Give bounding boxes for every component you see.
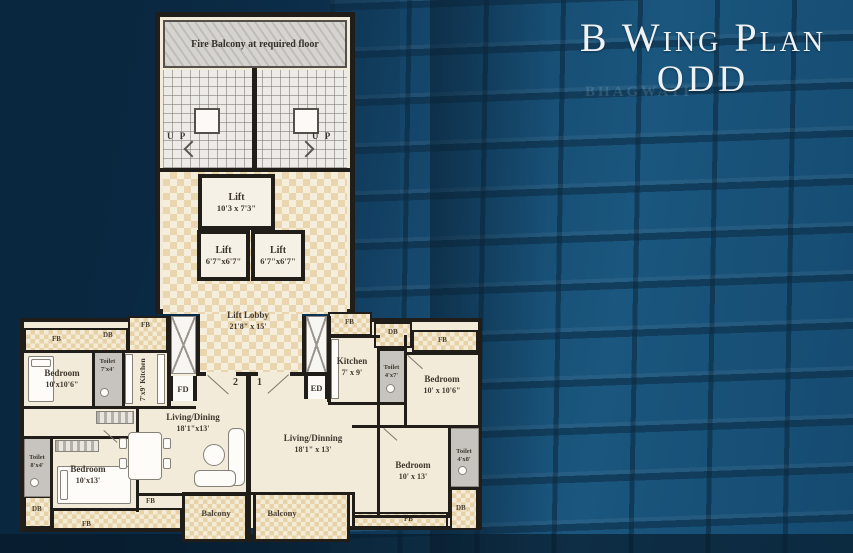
flat2-kitchen-label: 7'x9' Kitchen xyxy=(138,356,147,404)
flat1-kitchen-label: Kitchen 7' x 9' xyxy=(328,356,376,378)
flat1-toilet2-label: Toilet 4'x8' xyxy=(450,448,478,465)
wall xyxy=(377,402,380,518)
wall xyxy=(24,406,196,409)
plan-title-line1: B Wing Plan xyxy=(560,16,846,60)
chair-icon xyxy=(163,458,171,469)
flat2-toilet2-label: Toilet 8'x4' xyxy=(24,454,50,471)
wall xyxy=(328,402,406,405)
wall xyxy=(404,352,479,355)
fd-label: FD xyxy=(177,384,188,394)
wall xyxy=(352,492,355,528)
wc-icon xyxy=(458,466,467,475)
wall xyxy=(352,425,479,428)
plan-title: B Wing Plan ODD xyxy=(560,16,846,101)
wall xyxy=(290,372,332,376)
wc-icon xyxy=(30,478,39,487)
db-marker: DB xyxy=(32,505,42,513)
room-size: 7' x 9' xyxy=(328,368,376,378)
wall xyxy=(246,372,251,542)
room-size: 8'x4' xyxy=(24,462,50,470)
flat1-bedroom1-label: Bedroom 10' x 10'6" xyxy=(410,374,474,396)
wall xyxy=(302,316,306,376)
room-name: Toilet xyxy=(379,364,404,372)
flat1-balcony-label: Balcony xyxy=(258,508,306,518)
lift-small-right: Lift 6'7"x6'7" xyxy=(251,230,305,281)
wall xyxy=(328,335,380,338)
room-size: 18'1" x 13' xyxy=(268,445,358,455)
flat2-bedroom2-label: Bedroom 10'x13' xyxy=(62,464,114,486)
fire-balcony-label: Fire Balcony at required floor xyxy=(191,39,319,50)
wall xyxy=(167,316,171,408)
db-marker: DB xyxy=(388,328,398,336)
room-name: Toilet xyxy=(93,358,122,366)
screenshot-root: BHAGWATI B Wing Plan ODD Fire Balcony at… xyxy=(0,0,853,553)
flat2-balcony-label: Balcony xyxy=(192,508,240,518)
room-size: 4'x7' xyxy=(379,372,404,380)
chair-icon xyxy=(163,438,171,449)
flat1-number: 1 xyxy=(257,377,262,388)
room-name: Lift xyxy=(270,245,286,256)
background-bottom-band xyxy=(0,534,853,553)
wall xyxy=(196,316,200,376)
ed-label: ED xyxy=(311,383,323,393)
room-size: 21'8" x 15' xyxy=(198,322,298,332)
wall xyxy=(377,348,406,351)
pillow-icon xyxy=(31,359,51,367)
duct-shaft-right xyxy=(306,316,327,374)
wall xyxy=(478,318,482,530)
fb-marker: FB xyxy=(82,520,91,528)
up-label-right: U P xyxy=(312,131,332,141)
room-size: 6'7"x6'7" xyxy=(206,256,241,266)
wall xyxy=(448,487,479,490)
fb-marker: FB xyxy=(52,335,61,343)
room-size: 10'x10'6" xyxy=(36,380,88,390)
duct-shaft-left xyxy=(171,316,196,374)
room-size: 10'x13' xyxy=(62,476,114,486)
room-size: 10' x 13' xyxy=(384,472,442,482)
wardrobe-icon xyxy=(55,440,99,452)
round-table-icon xyxy=(203,444,225,466)
db-marker: DB xyxy=(456,504,466,512)
room-name: Living/Dining xyxy=(148,412,238,424)
kitchen-counter-icon xyxy=(125,354,133,404)
room-size: 18'1"x13' xyxy=(148,424,238,434)
fb-marker: FB xyxy=(438,336,447,344)
room-size: 7'x4' xyxy=(93,366,122,374)
wall xyxy=(50,508,138,511)
fire-balcony-band: Fire Balcony at required floor xyxy=(163,20,347,68)
room-name: Toilet xyxy=(450,448,478,456)
room-name: Bedroom xyxy=(410,374,474,386)
chair-icon xyxy=(119,438,127,449)
room-name: Kitchen xyxy=(328,356,376,368)
wall xyxy=(196,372,206,376)
flat1-toilet1-label: Toilet 4'x7' xyxy=(379,364,404,381)
lift-small-left: Lift 6'7"x6'7" xyxy=(197,230,250,281)
stair-core-left xyxy=(194,108,220,134)
room-name: Bedroom xyxy=(62,464,114,476)
wall xyxy=(251,492,352,495)
fb-marker: FB xyxy=(345,318,354,326)
room-name: Lift xyxy=(215,245,231,256)
flat2-living-label: Living/Dining 18'1"x13' xyxy=(148,412,238,434)
fb-marker: FB xyxy=(146,497,155,505)
room-name: Lift Lobby xyxy=(198,310,298,322)
lift-main: Lift 10'3 x 7'3" xyxy=(198,174,275,230)
room-size: 6'7"x6'7" xyxy=(260,256,295,266)
wardrobe-icon xyxy=(96,411,134,424)
room-size: 10'3 x 7'3" xyxy=(217,203,256,213)
wc-icon xyxy=(386,384,395,393)
room-name: Bedroom xyxy=(384,460,442,472)
lift-lobby-label: Lift Lobby 21'8" x 15' xyxy=(198,310,298,332)
room-size: 4'x8' xyxy=(450,456,478,464)
entrance-door-box: ED xyxy=(304,376,329,399)
room-name: Lift xyxy=(228,192,244,203)
wall xyxy=(252,68,257,172)
fb-marker: FB xyxy=(141,321,150,329)
wall xyxy=(24,350,168,353)
flat2-number: 2 xyxy=(233,377,238,388)
flat2-bedroom1-label: Bedroom 10'x10'6" xyxy=(36,368,88,390)
dining-table-icon xyxy=(128,432,162,480)
flat2-toilet1-label: Toilet 7'x4' xyxy=(93,358,122,375)
flat2-bottom-balcony-strip xyxy=(52,508,182,530)
room-name: Toilet xyxy=(24,454,50,462)
wall xyxy=(50,436,53,530)
room-size: 10' x 10'6" xyxy=(410,386,474,396)
fire-door-box: FD xyxy=(169,376,197,401)
kitchen-counter-icon xyxy=(157,354,165,404)
sofa-icon xyxy=(194,470,236,487)
up-label-left: U P xyxy=(167,131,187,141)
wall xyxy=(136,493,248,496)
room-name: Living/Dinning xyxy=(268,433,358,445)
wall xyxy=(352,515,450,518)
flat1-living-label: Living/Dinning 18'1" x 13' xyxy=(268,433,358,455)
db-marker: DB xyxy=(103,331,113,339)
wall xyxy=(404,335,407,425)
wc-icon xyxy=(100,388,109,397)
plan-title-line2: ODD xyxy=(560,60,846,101)
wall xyxy=(448,425,451,518)
room-name: Bedroom xyxy=(36,368,88,380)
chair-icon xyxy=(119,458,127,469)
flat1-bedroom2-label: Bedroom 10' x 13' xyxy=(384,460,442,482)
